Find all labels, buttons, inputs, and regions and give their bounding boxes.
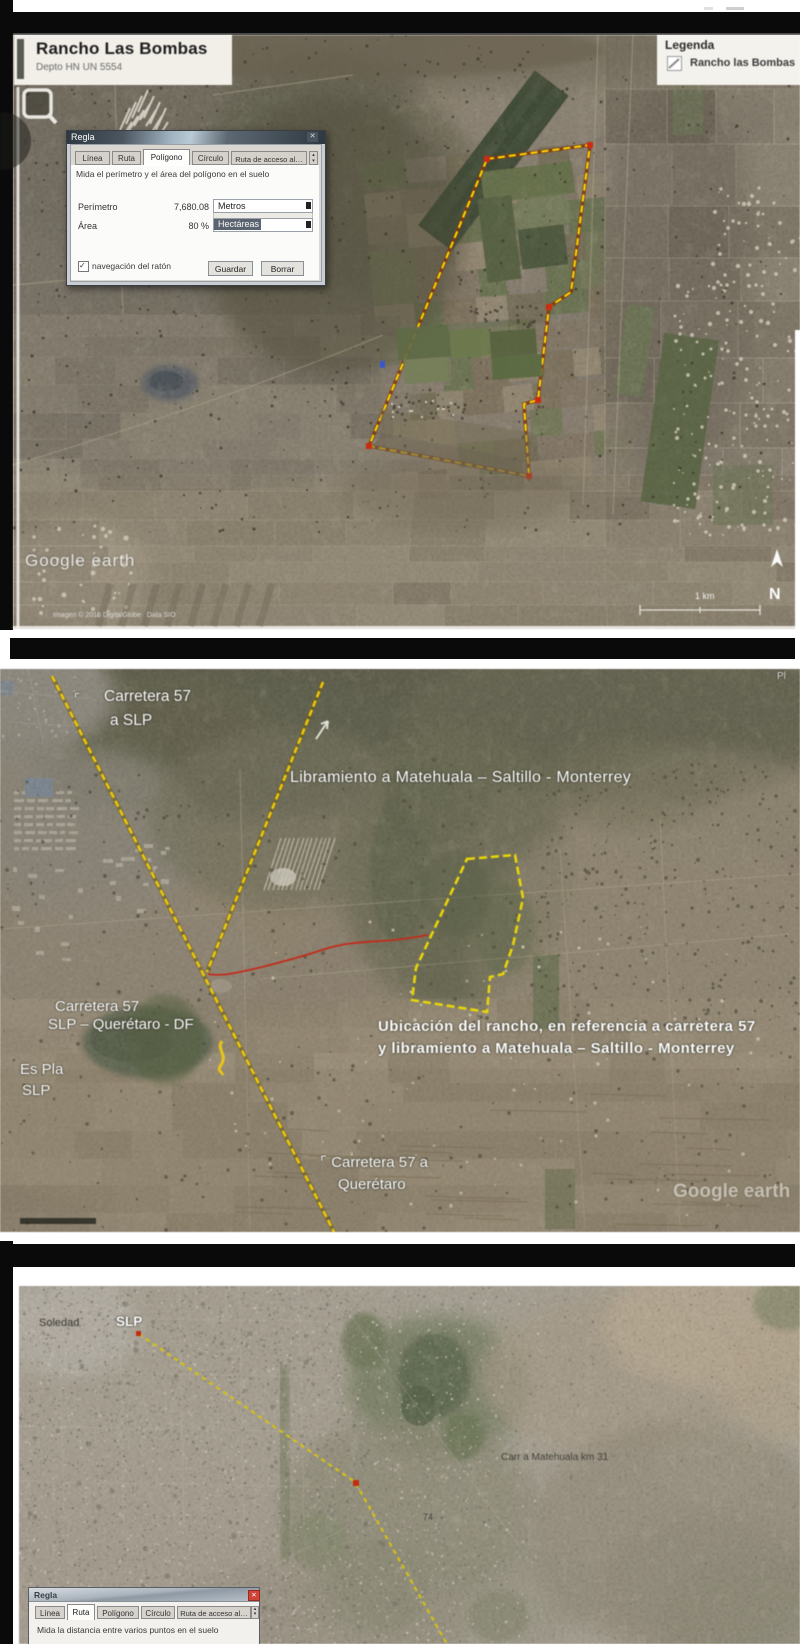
svg-text:N: N	[769, 586, 781, 603]
